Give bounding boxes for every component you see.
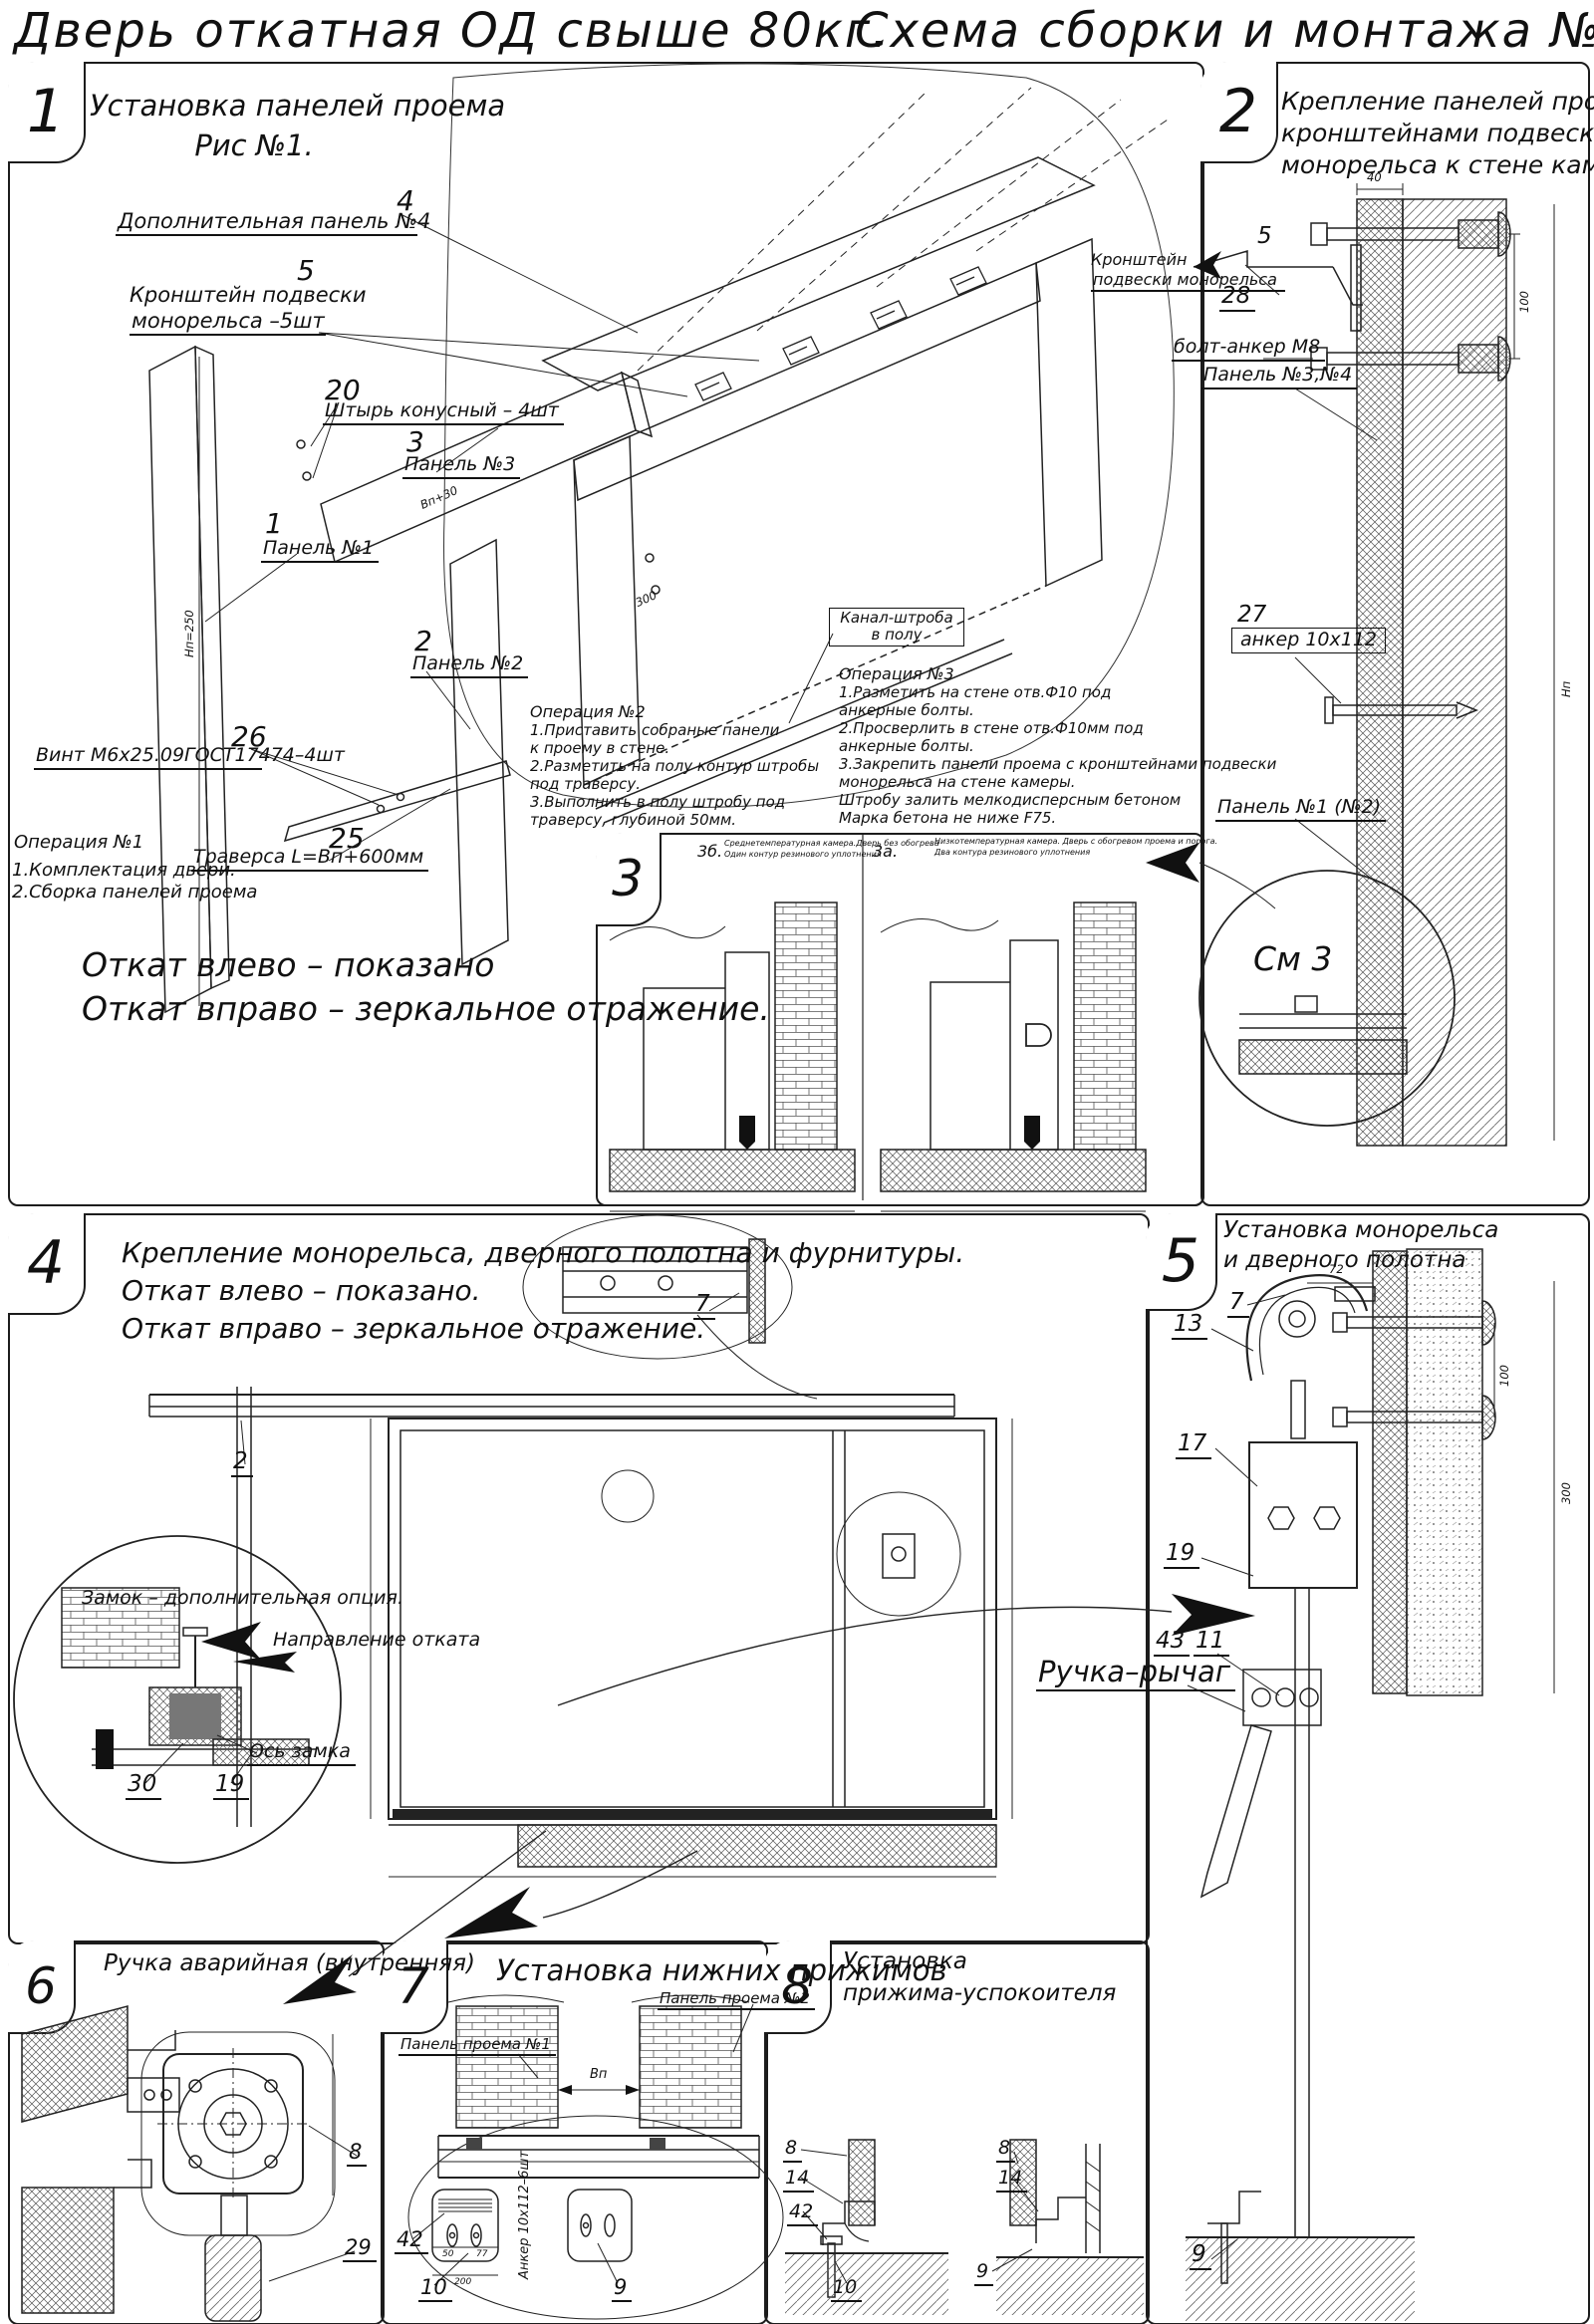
dim-100-p2: 100 [1518, 291, 1531, 313]
operation1-line2: 2.Сборка панелей проема [12, 883, 257, 904]
dim-40: 40 [1367, 171, 1382, 184]
operation2-line3: 2.Разметить на полу контур штробы [530, 758, 819, 775]
callout-1-number: 1 [265, 508, 283, 540]
dim-300-p5: 300 [1560, 1482, 1573, 1504]
callout-10-number-p7: 10 [418, 2275, 452, 2302]
panel4-title-line1: Крепление монорельса, дверного полотна и… [122, 1237, 964, 1269]
operation3-line2: анкерные болты. [839, 702, 974, 719]
callout-27-number: 27 [1237, 602, 1266, 628]
dim-opening-height: Нп=250 [183, 610, 196, 657]
panel1-title-line2: Рис №1. [90, 129, 418, 162]
slide-note-line1: Откат влево – показано [82, 946, 494, 984]
callout-anchor-10x112: анкер 10х112 [1231, 628, 1386, 653]
callout-anchor-bolt: болт-анкер М8 [1172, 337, 1325, 362]
section-3b-label: 3б. [697, 843, 722, 861]
callout-43-number: 43 [1154, 1628, 1190, 1657]
panel-opening-1-label: Панель проема №1 [398, 2036, 556, 2056]
panel5-title-line2: и дверного полотна [1223, 1247, 1465, 1273]
callout-panel3: Панель №3 [402, 454, 520, 479]
callout-8-right: 8 [996, 2138, 1015, 2163]
callout-8-number-p6: 8 [347, 2140, 367, 2167]
callout-9-number-p5: 9 [1190, 2241, 1211, 2270]
operation3-title: Операция №3 [839, 665, 954, 683]
callout-17-number: 17 [1176, 1430, 1211, 1459]
panel1-title-line1: Установка панелей проема [90, 90, 418, 123]
section-3a-label: 3а. [873, 843, 898, 861]
callout-14-left: 14 [783, 2168, 814, 2193]
callout-panel2: Панель №2 [410, 653, 528, 678]
callout-42-number-p8: 42 [787, 2201, 818, 2226]
operation3-line5: 3.Закрепить панели проема с кронштейнами… [839, 756, 1276, 773]
operation3-line3: 2.Просверлить в стене отв.Ф10мм под [839, 720, 1144, 737]
callout-cone-pin: Штырь конусный – 4шт [323, 400, 564, 425]
callout-screw: Винт М6х25.09ГОСТ17474–4шт [34, 745, 262, 770]
callout-30-number: 30 [126, 1771, 161, 1800]
callout-9-number-p7: 9 [612, 2275, 632, 2302]
callout-2-number-p4: 2 [231, 1448, 253, 1477]
drawing-sheet: Дверь откатная ОД свыше 80кг. Схема сбор… [0, 0, 1594, 2324]
panel-opening-2-label: Панель проема №2 [658, 1990, 815, 2010]
callout-floor-channel: Канал-штроба в полу [829, 608, 964, 646]
panel2-title-line2: кронштейнами подвески [1281, 120, 1580, 148]
callout-42-number-p7: 42 [395, 2227, 428, 2254]
callout-bracket-p2-line1: Кронштейн [1091, 251, 1187, 269]
callout-19-number-p4: 19 [213, 1771, 249, 1800]
dim-200: 200 [454, 2277, 471, 2287]
panel5-drawing [1172, 1249, 1554, 2321]
panel4-title-line2: Откат влево – показано. [122, 1275, 481, 1307]
callout-7-number-p4: 7 [693, 1291, 715, 1320]
callout-panels34: Панель №3,№4 [1201, 365, 1357, 389]
operation3-line8: Марка бетона не ниже F75. [839, 810, 1056, 827]
operation2-line2: к проему в стене. [530, 740, 669, 757]
panel5-title-line1: Установка монорельса [1223, 1217, 1498, 1243]
operation3-line7: Штробу залить мелкодисперсным бетоном [839, 792, 1181, 809]
dim-np: Нп [1560, 681, 1573, 697]
callout-8-left: 8 [783, 2138, 802, 2163]
dim-vp: Вп [590, 2068, 607, 2083]
sheet-title-left: Дверь откатная ОД свыше 80кг. [14, 4, 889, 59]
dim-50: 50 [442, 2249, 453, 2259]
section-3b-note2: Один контур резинового уплотнения [724, 850, 882, 859]
sheet-title-right: Схема сборки и монтажа №6 [855, 4, 1594, 59]
operation3-line4: анкерные болты. [839, 738, 974, 755]
floor-channel-line1: Канал-штроба [840, 609, 952, 627]
panel8-title-line2: прижима-успокоителя [843, 1980, 1116, 2006]
anchor-6pcs-label: Анкер 10х112–6шт [518, 2151, 533, 2279]
callout-19-number-p5: 19 [1164, 1540, 1199, 1569]
dim-100-p5: 100 [1498, 1365, 1511, 1387]
callout-7-number-p5: 7 [1227, 1289, 1249, 1318]
callout-panels12: Панель №1 (№2) [1215, 797, 1386, 822]
panel2-drawing [1146, 183, 1554, 1146]
section-3a-note2: Два контура резинового уплотнения [934, 848, 1090, 857]
handle-lever-label: Ручка–рычаг [1036, 1656, 1235, 1691]
panel8-title-line1: Установка [843, 1948, 967, 1974]
panel2-title-line3: монорельса к стене камеры. [1281, 151, 1580, 180]
operation2-line1: 1.Приставить собраные панели [530, 722, 779, 739]
operation2-line5: 3.Выполнить в полу штробу под [530, 794, 785, 811]
operation1-title: Операция №1 [14, 833, 143, 854]
callout-additional-panel: Дополнительная панель №4 [116, 209, 417, 236]
callout-29-number: 29 [343, 2235, 377, 2262]
callout-13-number: 13 [1172, 1311, 1207, 1340]
panel4-title-line3: Откат вправо – зеркальное отражение. [122, 1313, 705, 1345]
callout-11-number: 11 [1194, 1628, 1229, 1657]
lock-option-note: Замок – дополнительная опция. [82, 1588, 403, 1610]
operation3-line1: 1.Разметить на стене отв.Ф10 под [839, 684, 1111, 701]
callout-10-number-p8: 10 [831, 2277, 862, 2302]
floor-channel-line2: в полу [871, 626, 922, 644]
see-detail-3: См 3 [1253, 940, 1332, 978]
panel6-title: Ручка аварийная (внутренняя) [104, 1950, 475, 1976]
slide-note-line2: Откат вправо – зеркальное отражение. [82, 990, 770, 1028]
panel2-title-line1: Крепление панелей проема с [1281, 88, 1580, 117]
operation3-line6: монорельса на стене камеры. [839, 774, 1076, 791]
callout-bracket-line1: Кронштейн подвески [130, 283, 367, 307]
lock-axis-label: Ось замка [247, 1741, 356, 1766]
callout-bracket-line2: монорельса –5шт [130, 309, 326, 336]
operation2-line4: под траверсу. [530, 776, 641, 793]
callout-5-number-p2: 5 [1257, 223, 1272, 249]
callout-14-right: 14 [996, 2168, 1027, 2193]
dim-77: 77 [476, 2249, 487, 2259]
section-3b-note1: Среднетемпературная камера.Дверь без обо… [724, 839, 939, 848]
dim-72: 72 [1329, 1263, 1344, 1276]
section-3a-note1: Низкотемпературная камера. Дверь с обогр… [934, 837, 1217, 846]
callout-28-number: 28 [1219, 283, 1255, 312]
callout-9-number-p8: 9 [974, 2261, 993, 2286]
callout-panel1: Панель №1 [261, 538, 379, 563]
operation1-line1: 1.Комплектация двери. [12, 861, 236, 882]
operation2-line6: траверсу, глубиной 50мм. [530, 812, 736, 829]
operation2-title: Операция №2 [530, 703, 646, 721]
slide-direction-label: Направление отката [273, 1630, 480, 1652]
callout-bracket-p2-line2: подвески монорельса [1091, 271, 1285, 292]
